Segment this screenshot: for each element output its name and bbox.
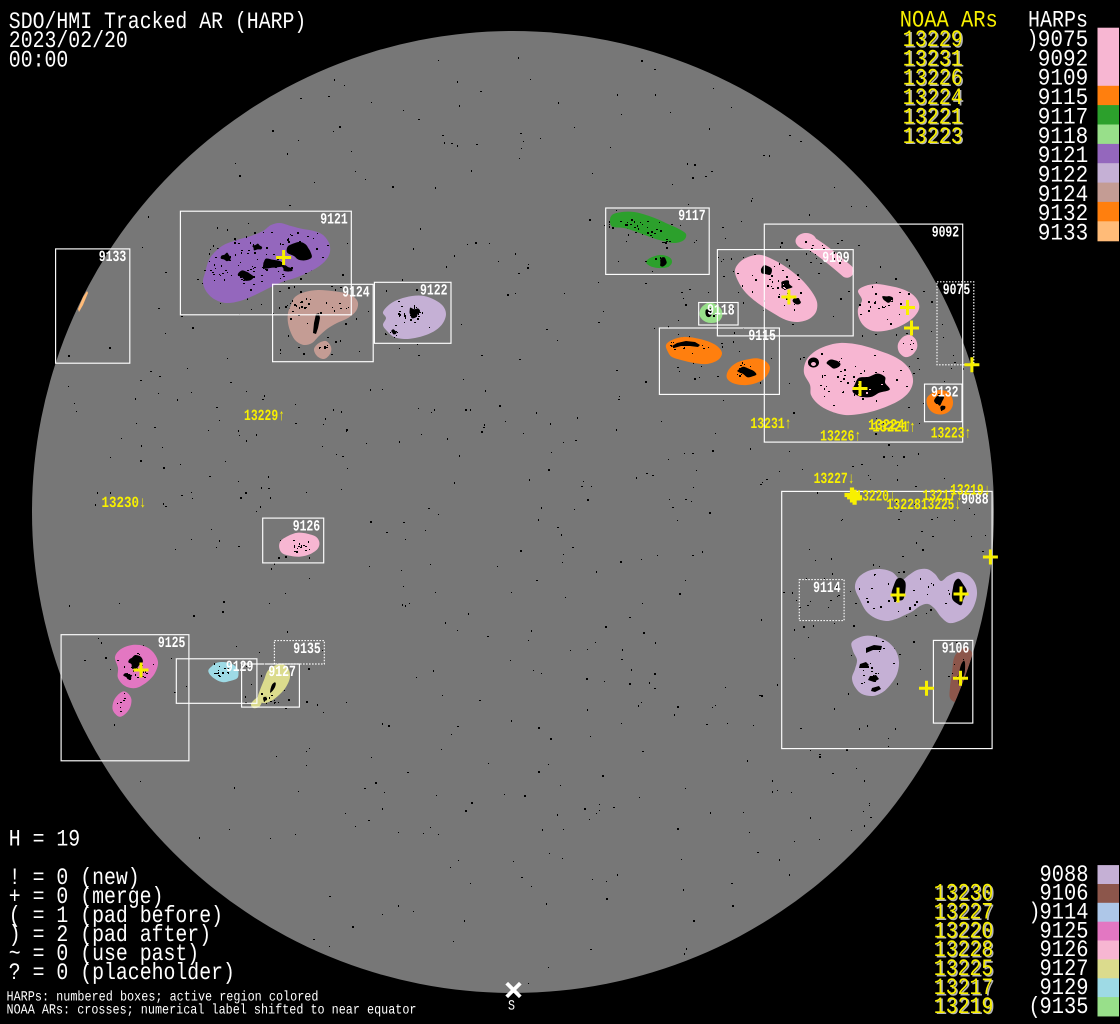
svg-text:13223: 13223 [903, 124, 963, 151]
svg-text:13229↑: 13229↑ [244, 407, 285, 425]
svg-text:9133: 9133 [1038, 221, 1089, 248]
svg-text:13223↑: 13223↑ [931, 425, 972, 443]
svg-text:13231↑: 13231↑ [750, 415, 791, 433]
svg-text:9135: 9135 [293, 640, 321, 658]
svg-text:13219: 13219 [934, 994, 994, 1021]
svg-text:13226↑: 13226↑ [820, 427, 861, 445]
svg-text:9127: 9127 [268, 663, 296, 681]
svg-text:9129: 9129 [226, 658, 254, 676]
svg-text:9135: 9135 [1040, 994, 1089, 1021]
svg-text:? = 0 (placeholder): ? = 0 (placeholder) [9, 960, 235, 987]
svg-text:9121: 9121 [320, 210, 348, 228]
svg-text:9126: 9126 [293, 517, 321, 535]
svg-text:9118: 9118 [707, 302, 735, 320]
svg-text:9133: 9133 [99, 248, 127, 266]
svg-text:9092: 9092 [932, 223, 960, 241]
svg-text:9132: 9132 [931, 383, 959, 401]
svg-text:9109: 9109 [822, 249, 850, 267]
svg-text:13230↓: 13230↓ [102, 494, 147, 512]
svg-text:13224↑: 13224↑ [868, 416, 912, 434]
svg-text:00:00: 00:00 [9, 48, 69, 75]
svg-text:S: S [508, 999, 515, 1015]
svg-text:9106: 9106 [942, 640, 970, 658]
svg-text:13219↓: 13219↓ [950, 482, 990, 500]
svg-text:9125: 9125 [158, 634, 186, 652]
svg-text:9075: 9075 [943, 281, 971, 299]
svg-text:H = 19: H = 19 [9, 827, 80, 854]
svg-text:NOAA ARs: crosses; numerical l: NOAA ARs: crosses; numerical label shift… [7, 1002, 417, 1018]
svg-text:13227↓: 13227↓ [814, 470, 855, 488]
svg-text:9122: 9122 [420, 282, 448, 300]
svg-text:9124: 9124 [342, 284, 370, 302]
svg-text:9114: 9114 [813, 579, 841, 597]
svg-text:9117: 9117 [678, 207, 706, 225]
svg-text:): ) [1027, 27, 1039, 54]
